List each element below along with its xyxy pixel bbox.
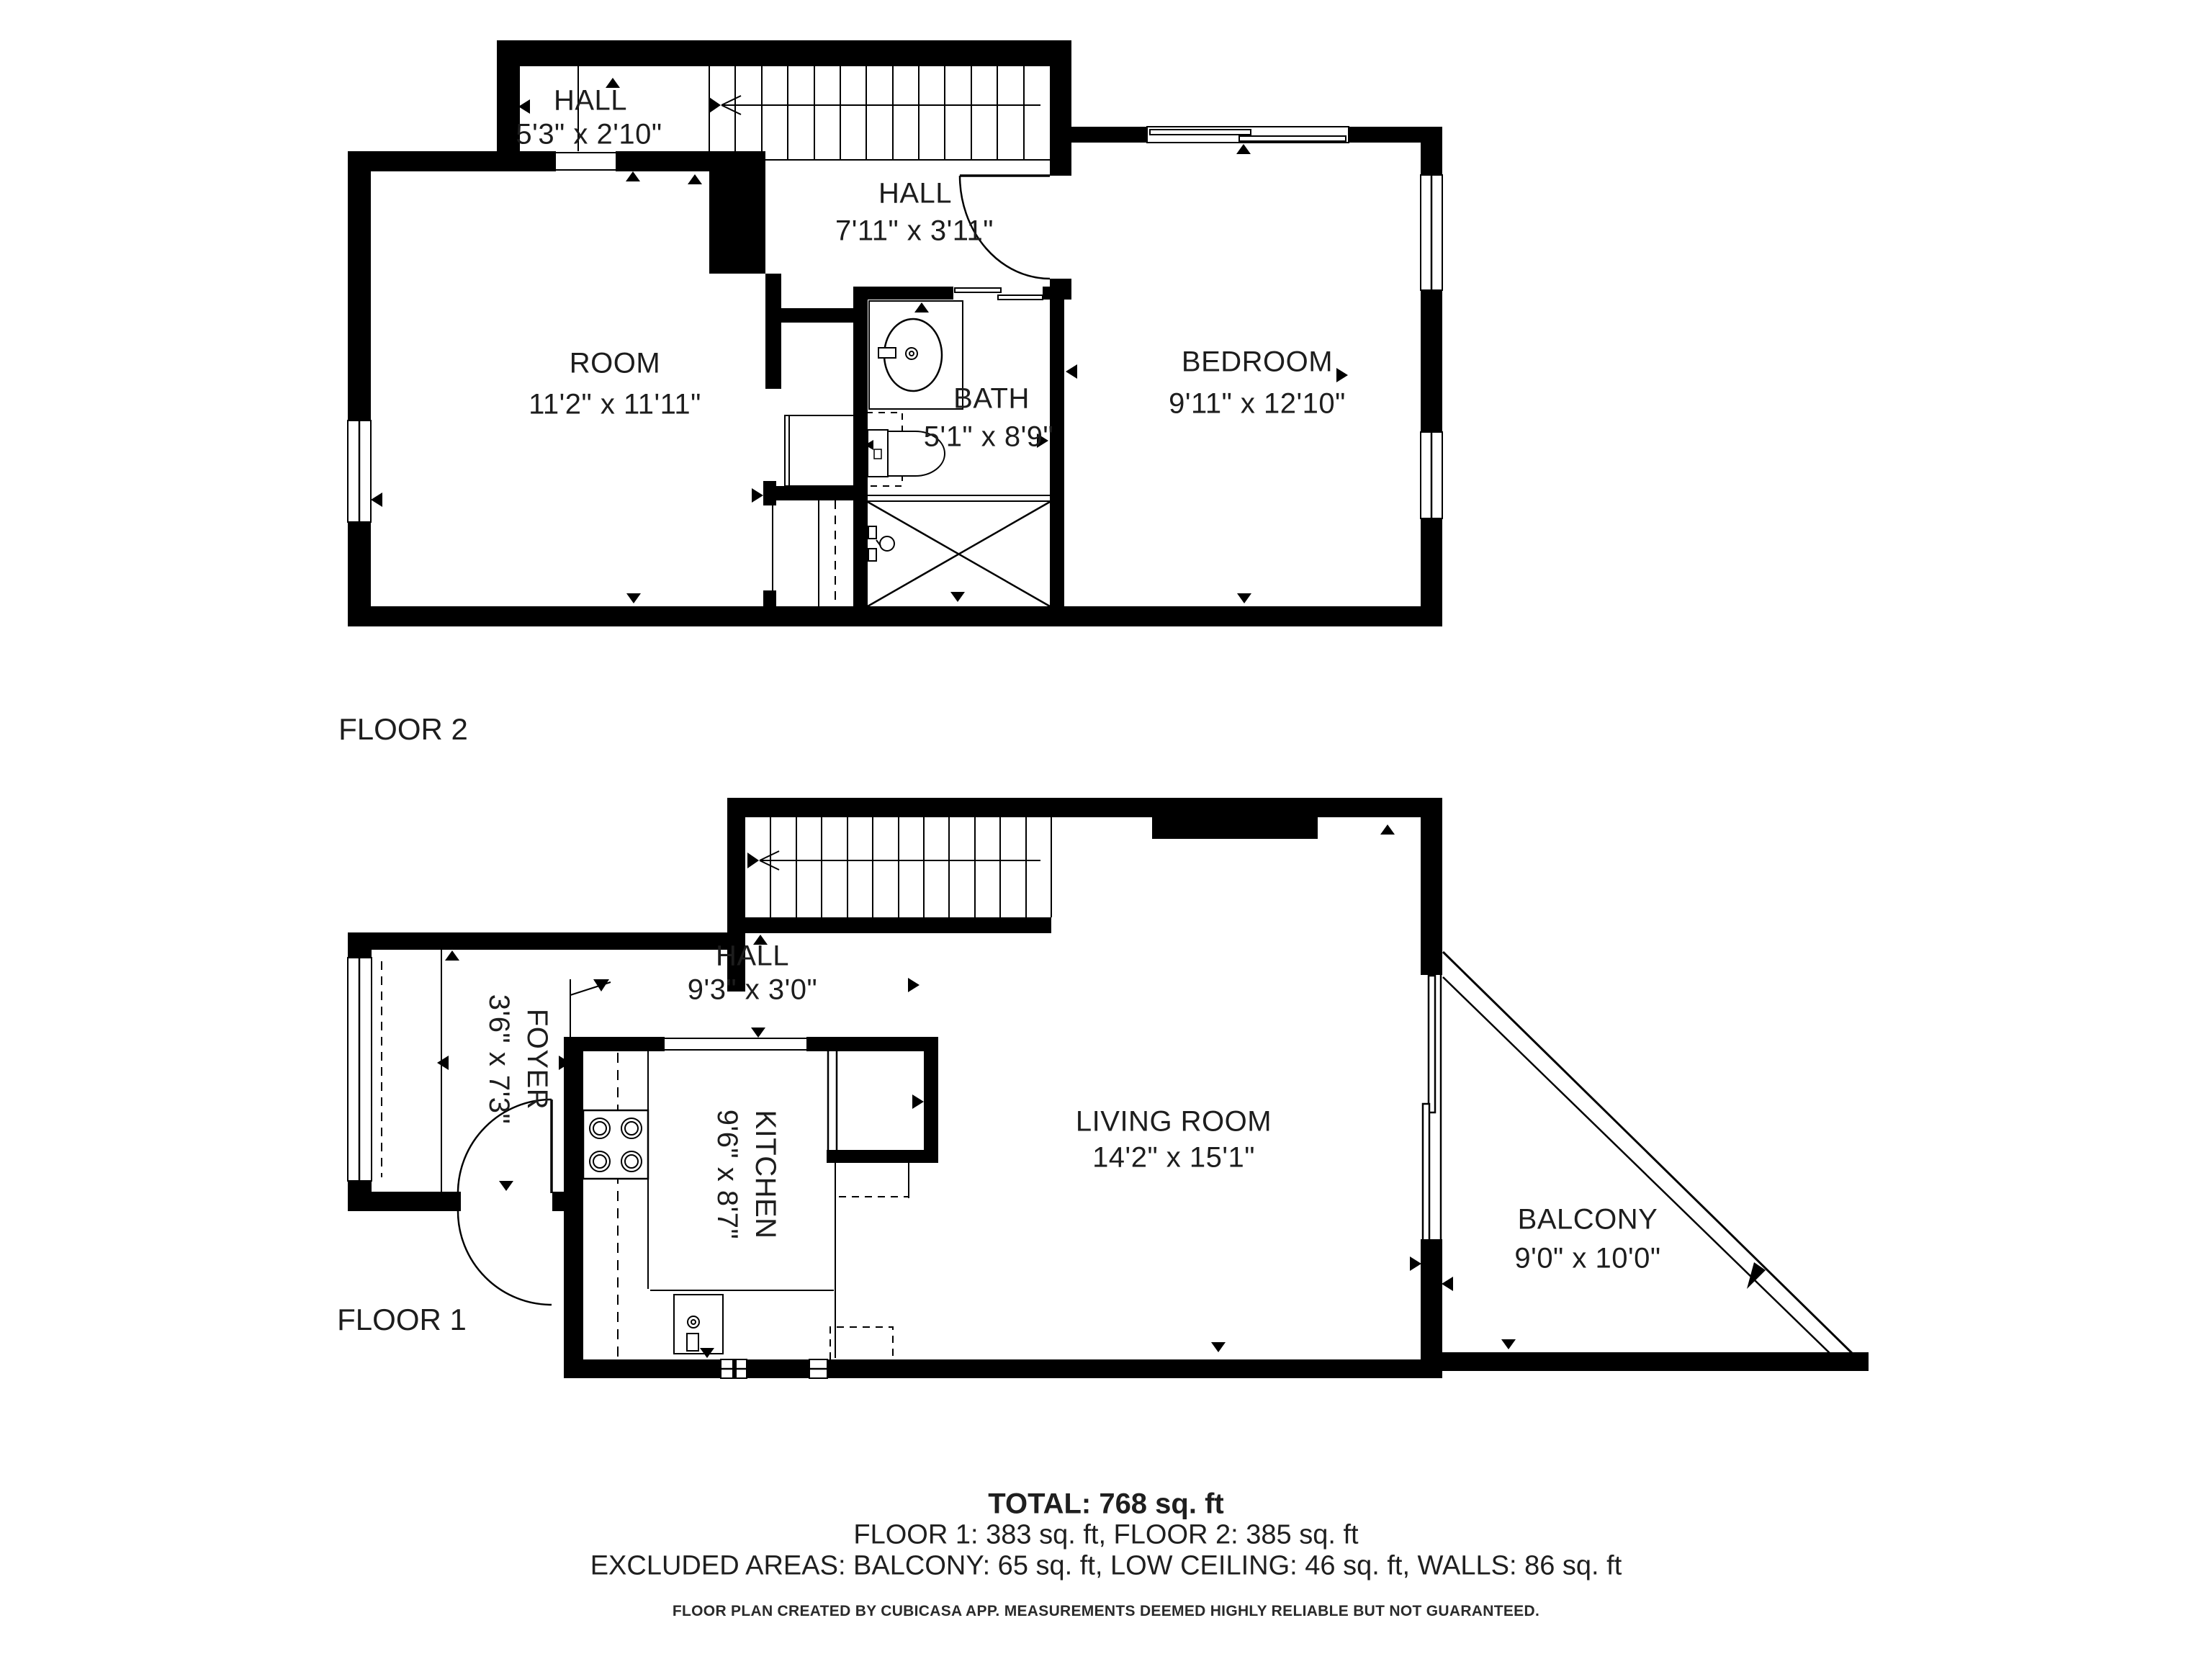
stair-direction-marker <box>747 853 759 868</box>
room-name-foyer: FOYER <box>518 994 556 1124</box>
room-label-hall-upper: HALL <box>554 85 627 117</box>
window <box>1421 432 1442 518</box>
stair-direction-marker <box>709 97 721 113</box>
floor2-plan <box>348 40 1442 626</box>
low-ceiling-line <box>830 1327 893 1359</box>
room-label-hall-floor2: HALL <box>878 178 952 210</box>
summary-excluded: EXCLUDED AREAS: BALCONY: 65 sq. ft, LOW … <box>590 1551 1622 1582</box>
room-dims-room: 11'2" x 11'11" <box>529 389 701 421</box>
passage-opening <box>556 153 616 170</box>
entry-door <box>458 1100 552 1305</box>
kitchen-closet-glass <box>828 1051 837 1150</box>
room-label-bedroom: BEDROOM <box>1182 346 1333 379</box>
floor1-label: FLOOR 1 <box>337 1303 467 1337</box>
room-label-bath: BATH <box>953 383 1030 415</box>
room-dims-kitchen: 9'6" x 8'7" <box>708 1110 746 1239</box>
bath-sliding-door <box>955 288 1043 300</box>
walls-floor1 <box>348 798 1869 1378</box>
shower <box>868 495 1050 606</box>
floor-plan-drawing <box>0 0 2212 1659</box>
floor2-label: FLOOR 2 <box>338 712 468 747</box>
room-dims-hall-floor1: 9'3" x 3'0" <box>688 974 817 1007</box>
room-label-living-room: LIVING ROOM <box>1076 1106 1272 1138</box>
window <box>348 421 371 522</box>
floor1-plan <box>348 798 1869 1378</box>
window <box>1147 127 1349 143</box>
room-label-hall-floor1: HALL <box>716 940 789 973</box>
room-dims-bath: 5'1" x 8'9" <box>924 421 1053 454</box>
stove <box>583 1110 648 1179</box>
room-label-foyer: FOYER 3'6" x 7'3" <box>480 994 556 1124</box>
room-label-kitchen: KITCHEN 9'6" x 8'7" <box>708 1110 784 1239</box>
foyer-window <box>348 950 441 1192</box>
room-dims-balcony: 9'0" x 10'0" <box>1514 1243 1660 1275</box>
room-dims-hall-upper: 5'3" x 2'10" <box>516 119 662 151</box>
summary-floors: FLOOR 1: 383 sq. ft, FLOOR 2: 385 sq. ft <box>853 1520 1358 1551</box>
summary-total: TOTAL: 768 sq. ft <box>988 1488 1223 1521</box>
window <box>1421 175 1442 290</box>
bathroom-sink <box>869 301 963 409</box>
kitchen-opening <box>665 1038 806 1050</box>
staircase-floor1 <box>760 817 1051 917</box>
room-dims-bedroom: 9'11" x 12'10" <box>1169 388 1346 421</box>
room-name-kitchen: KITCHEN <box>746 1110 784 1239</box>
balcony-sliding-door <box>1421 974 1442 1241</box>
room-dims-foyer: 3'6" x 7'3" <box>480 994 518 1124</box>
room-dims-hall-floor2: 7'11" x 3'11" <box>835 215 994 248</box>
floor-plan-document: HALL 5'3" x 2'10" HALL 7'11" x 3'11" ROO… <box>0 0 2212 1659</box>
closet-floor2 <box>773 415 854 608</box>
room-label-balcony: BALCONY <box>1518 1204 1658 1236</box>
kitchen-sink <box>674 1295 723 1354</box>
room-dims-living-room: 14'2" x 15'1" <box>1092 1142 1255 1174</box>
foyer-hall-doorway <box>570 979 611 1039</box>
disclaimer: FLOOR PLAN CREATED BY CUBICASA APP. MEAS… <box>673 1603 1539 1620</box>
wall-arrows-floor1 <box>437 824 1516 1358</box>
balcony-railing <box>1443 952 1857 1358</box>
room-label-room: ROOM <box>570 348 660 380</box>
